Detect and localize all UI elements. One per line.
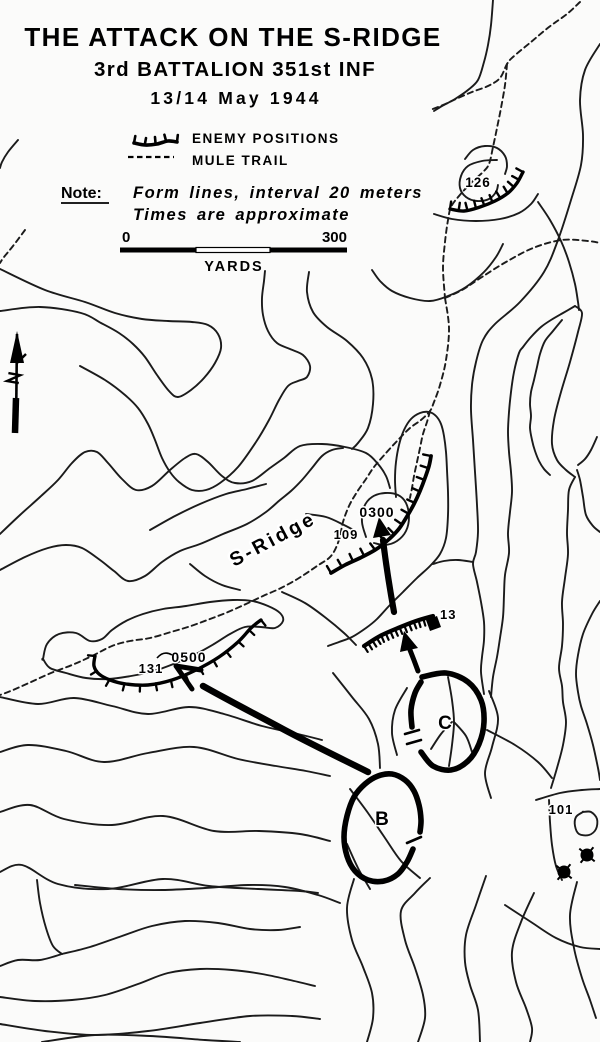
svg-text:131: 131: [139, 661, 164, 676]
svg-text:0: 0: [122, 229, 130, 246]
svg-text:13: 13: [440, 607, 456, 622]
svg-text:Note:: Note:: [61, 185, 102, 202]
svg-text:0300: 0300: [359, 504, 394, 520]
svg-text:3rd BATTALION 351st INF: 3rd BATTALION 351st INF: [94, 58, 376, 81]
svg-text:MULE TRAIL: MULE TRAIL: [192, 153, 289, 168]
svg-text:ENEMY POSITIONS: ENEMY POSITIONS: [192, 131, 340, 146]
svg-text:THE ATTACK ON THE S-RIDGE: THE ATTACK ON THE S-RIDGE: [24, 22, 441, 52]
svg-text:Times are approximate: Times are approximate: [133, 206, 350, 224]
svg-text:13/14 May 1944: 13/14 May 1944: [150, 88, 321, 108]
svg-text:C: C: [438, 713, 452, 734]
svg-text:Form lines, interval 20 meters: Form lines, interval 20 meters: [133, 184, 423, 202]
svg-text:YARDS: YARDS: [204, 259, 263, 275]
svg-text:101: 101: [549, 802, 574, 817]
svg-text:B: B: [375, 809, 389, 830]
svg-text:300: 300: [322, 229, 347, 246]
svg-text:109: 109: [334, 527, 359, 542]
svg-text:126: 126: [465, 175, 491, 190]
svg-text:0500: 0500: [171, 649, 206, 665]
